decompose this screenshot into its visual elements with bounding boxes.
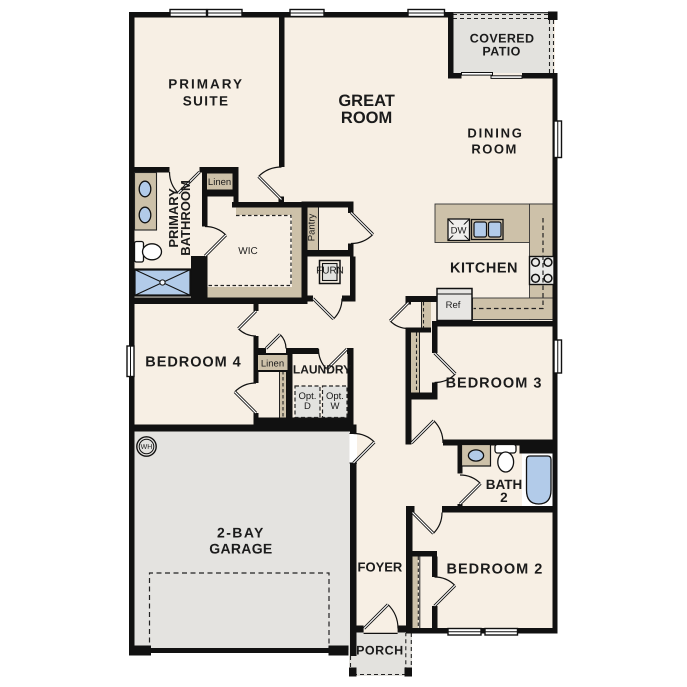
svg-text:PORCH: PORCH [356,644,404,658]
svg-text:ROOM: ROOM [471,142,517,157]
svg-text:WIC: WIC [238,246,257,257]
svg-text:Pantry: Pantry [307,214,318,242]
svg-text:GREAT: GREAT [338,92,395,110]
svg-text:BEDROOM 3: BEDROOM 3 [446,376,543,392]
svg-text:W: W [330,401,339,412]
svg-text:DINING: DINING [467,126,523,141]
svg-text:Linen: Linen [261,358,284,369]
svg-text:BATHROOM: BATHROOM [178,180,193,256]
svg-text:FURN: FURN [316,265,344,276]
svg-text:WH: WH [141,444,153,451]
svg-text:2: 2 [500,490,508,505]
svg-text:COVERED: COVERED [470,32,535,46]
svg-text:PRIMARY: PRIMARY [168,76,244,91]
svg-text:Ref: Ref [446,300,461,311]
svg-text:FOYER: FOYER [358,560,403,575]
svg-text:2-BAY: 2-BAY [217,524,265,540]
svg-text:KITCHEN: KITCHEN [450,261,518,277]
svg-text:BEDROOM 2: BEDROOM 2 [447,562,544,578]
svg-text:BEDROOM 4: BEDROOM 4 [145,354,241,370]
svg-text:ROOM: ROOM [341,109,392,127]
svg-text:LAUNDRY: LAUNDRY [293,362,351,376]
svg-text:Linen: Linen [208,177,231,188]
svg-text:D: D [304,401,311,412]
svg-text:DW: DW [451,226,467,237]
svg-text:GARAGE: GARAGE [209,540,272,556]
svg-text:PATIO: PATIO [482,45,520,59]
svg-text:SUITE: SUITE [183,93,230,108]
